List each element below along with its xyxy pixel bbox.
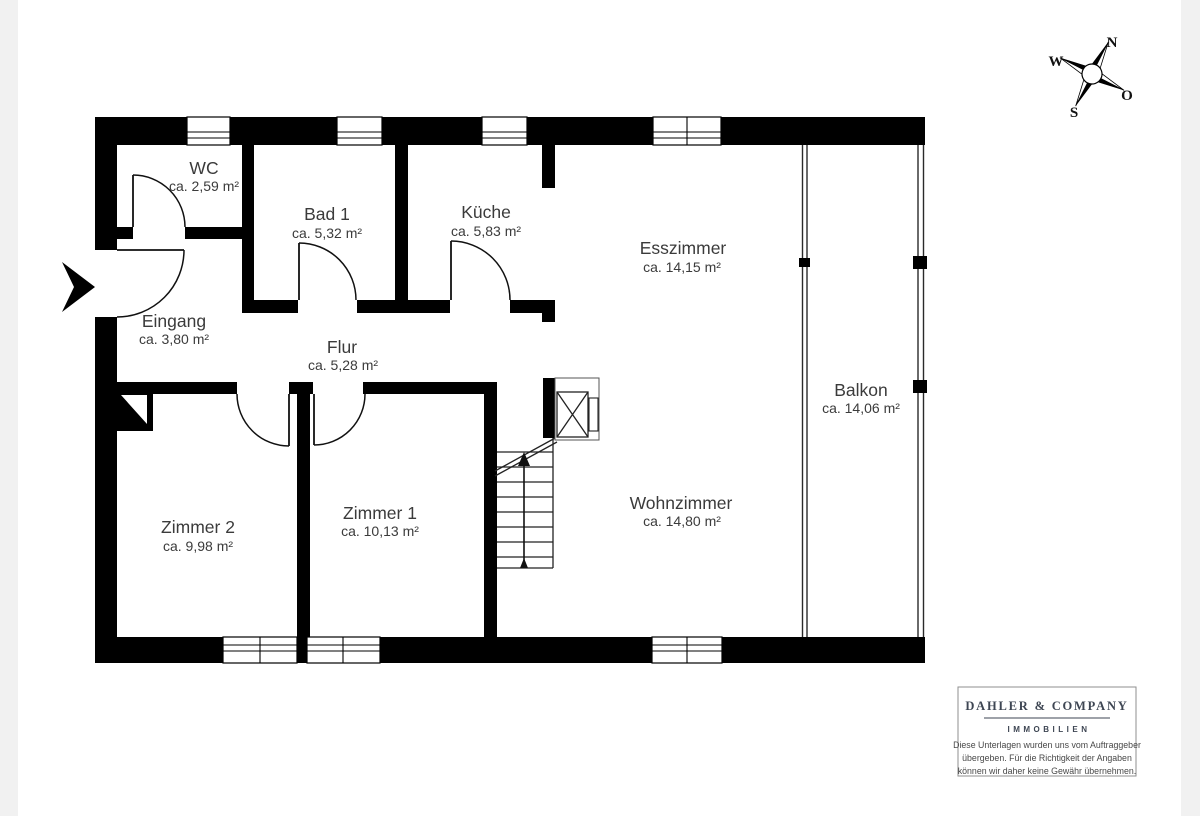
room-area: ca. 2,59 m²: [169, 178, 239, 194]
room-name: Küche: [461, 202, 511, 222]
room-area: ca. 9,98 m²: [163, 538, 233, 554]
room-label-eingang: Eingang ca. 3,80 m²: [139, 311, 209, 347]
walls: [95, 117, 925, 663]
brand-disclaimer-line: Diese Unterlagen wurden uns vom Auftragg…: [953, 740, 1141, 750]
compass-arms: [1044, 26, 1141, 123]
shaft: [555, 378, 599, 440]
window-frame: [187, 117, 230, 145]
room-area: ca. 14,06 m²: [822, 400, 900, 416]
railing-post: [913, 380, 927, 393]
room-label-wc: WC ca. 2,59 m²: [169, 158, 239, 194]
room-label-wohnzimmer: Wohnzimmer ca. 14,80 m²: [630, 493, 733, 529]
wall-flur-top-a: [242, 300, 298, 313]
wall-bad1-kueche-divider: [395, 117, 408, 312]
door-entrance: [117, 250, 184, 317]
brand-division-name: IMMOBILIEN: [1008, 725, 1091, 734]
brand-box: DAHLER & COMPANY IMMOBILIEN Diese Unterl…: [953, 687, 1141, 776]
room-label-bad1: Bad 1 ca. 5,32 m²: [292, 204, 362, 241]
compass-north-label: N: [1107, 35, 1118, 51]
stair-start-arrow-icon: [520, 558, 528, 568]
room-area: ca. 5,28 m²: [308, 357, 378, 373]
compass-east-label: O: [1121, 88, 1133, 104]
room-name: Flur: [327, 337, 357, 357]
room-area: ca. 14,80 m²: [643, 513, 721, 529]
railing-post: [913, 256, 927, 269]
door-bad1: [299, 243, 356, 300]
window-top-kueche: [482, 117, 527, 145]
room-name: Zimmer 2: [161, 517, 235, 537]
floorplan-svg: N W O S WC ca. 2,59 m² Bad 1 ca. 5,32 m²…: [0, 0, 1200, 816]
room-name: Zimmer 1: [343, 503, 417, 523]
window-frame: [482, 117, 527, 145]
left-margin-band: [0, 0, 18, 816]
room-name: WC: [189, 158, 218, 178]
shaft-side-tab: [589, 398, 598, 431]
room-label-esszimmer: Esszimmer ca. 14,15 m²: [640, 238, 727, 275]
window-bottom-zimmer1: [307, 637, 380, 663]
wall-wc-bottom-right: [185, 227, 242, 239]
entrance-arrow-icon: [62, 262, 95, 312]
door-swing-arc: [299, 243, 356, 300]
room-name: Bad 1: [304, 204, 350, 224]
door-zimmer2: [237, 394, 289, 446]
wall-zimmer-divider: [297, 382, 310, 637]
window-bottom-wohnzimmer: [652, 637, 722, 663]
compass-west-label: W: [1049, 54, 1064, 70]
wall-flur-bottom-c: [363, 382, 497, 394]
room-name: Eingang: [142, 311, 206, 331]
room-area: ca. 14,15 m²: [643, 259, 721, 275]
door-kueche: [451, 241, 510, 300]
wall-flur-bottom-a: [117, 382, 237, 394]
window-top-wc: [187, 117, 230, 145]
wall-bottom: [95, 637, 925, 663]
door-zimmer1: [314, 394, 365, 445]
door-swing-arc: [314, 394, 365, 445]
chimney: [115, 393, 153, 431]
wall-wc-bottom-left: [108, 227, 133, 239]
glass-front-mullion: [799, 258, 810, 267]
brand-company-name: DAHLER & COMPANY: [965, 699, 1128, 713]
window-top-bad1: [337, 117, 382, 145]
room-label-zimmer2: Zimmer 2 ca. 9,98 m²: [161, 517, 235, 554]
room-name: Esszimmer: [640, 238, 727, 258]
stairs: [495, 437, 557, 568]
room-label-flur: Flur ca. 5,28 m²: [308, 337, 378, 373]
door-swing-arc: [451, 241, 510, 300]
room-area: ca. 5,32 m²: [292, 225, 362, 241]
brand-disclaimer-line: können wir daher keine Gewähr übernehmen…: [958, 766, 1137, 776]
room-label-zimmer1: Zimmer 1 ca. 10,13 m²: [341, 503, 419, 539]
room-label-kueche: Küche ca. 5,83 m²: [451, 202, 521, 239]
room-area: ca. 10,13 m²: [341, 523, 419, 539]
wall-wc-bad1-divider: [242, 117, 254, 312]
window-frame: [337, 117, 382, 145]
brand-disclaimer-line: übergeben. Für die Richtigkeit der Angab…: [962, 753, 1132, 763]
room-name: Balkon: [834, 380, 888, 400]
wall-flur-top-corner: [542, 300, 555, 322]
room-name: Wohnzimmer: [630, 493, 733, 513]
wall-zimmer1-wohnzimmer: [484, 382, 497, 637]
room-label-balkon: Balkon ca. 14,06 m²: [822, 380, 900, 416]
compass-south-label: S: [1070, 105, 1078, 121]
window-bottom-zimmer2: [223, 637, 297, 663]
door-swing-arc: [237, 394, 289, 446]
compass-rose: N W O S: [1044, 26, 1141, 123]
room-area: ca. 5,83 m²: [451, 223, 521, 239]
window-top-esszimmer: [653, 117, 721, 145]
wall-kueche-esszimmer-stub: [542, 145, 555, 188]
floorplan-page: N W O S WC ca. 2,59 m² Bad 1 ca. 5,32 m²…: [0, 0, 1200, 816]
wall-left-lower: [95, 317, 117, 663]
right-margin-band: [1181, 0, 1200, 816]
wall-shaft-stub: [543, 378, 555, 438]
door-swing-arc: [117, 250, 184, 317]
stair-up-arrow-icon: [518, 452, 530, 466]
room-area: ca. 3,80 m²: [139, 331, 209, 347]
wall-flur-top-b: [357, 300, 450, 313]
